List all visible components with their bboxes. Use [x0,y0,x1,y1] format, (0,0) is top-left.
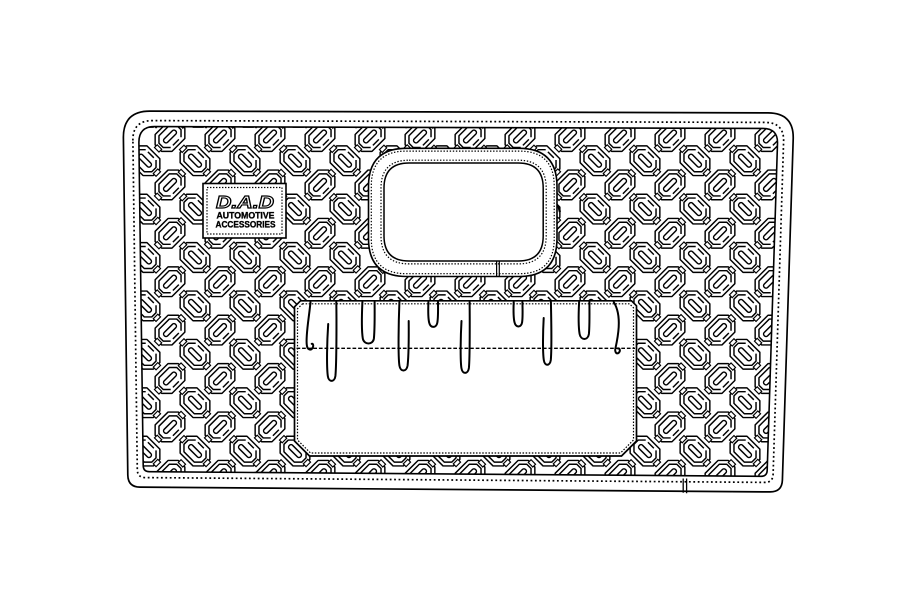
svg-text:ACCESSORIES: ACCESSORIES [216,219,276,230]
